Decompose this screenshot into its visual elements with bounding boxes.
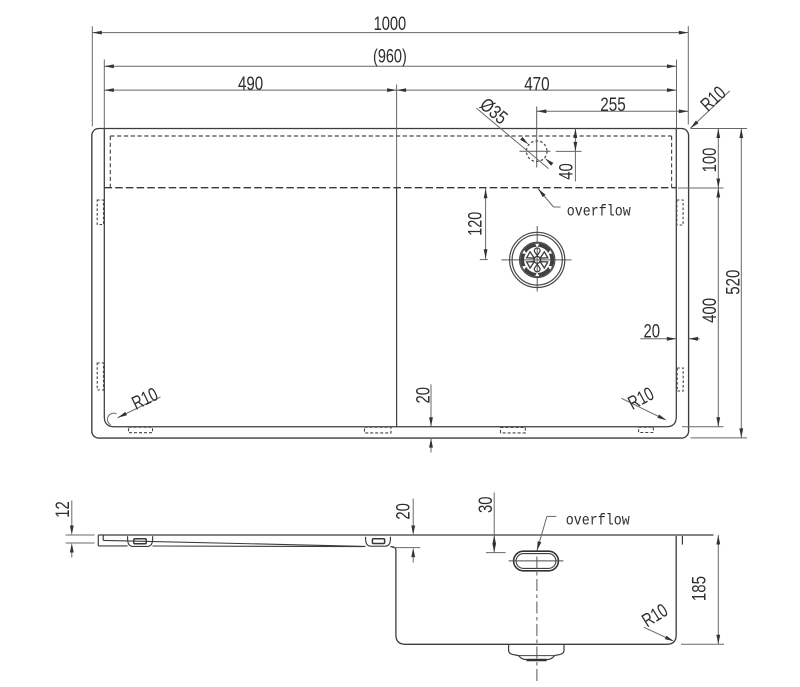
svg-text:20: 20: [394, 503, 415, 520]
svg-text:255: 255: [600, 95, 626, 116]
svg-text:20: 20: [414, 387, 435, 404]
svg-text:overflow: overflow: [567, 202, 631, 220]
svg-text:470: 470: [524, 75, 549, 96]
svg-text:120: 120: [465, 212, 486, 236]
svg-text:20: 20: [644, 321, 661, 342]
svg-text:1000: 1000: [374, 14, 407, 35]
svg-text:overflow: overflow: [566, 512, 630, 530]
svg-text:520: 520: [723, 270, 744, 295]
svg-text:(960): (960): [373, 46, 407, 67]
svg-text:185: 185: [690, 576, 711, 601]
svg-text:12: 12: [53, 501, 74, 518]
svg-text:30: 30: [476, 497, 497, 514]
svg-text:400: 400: [700, 298, 721, 323]
svg-text:100: 100: [700, 148, 721, 173]
svg-text:490: 490: [238, 74, 263, 95]
svg-text:40: 40: [556, 163, 577, 180]
